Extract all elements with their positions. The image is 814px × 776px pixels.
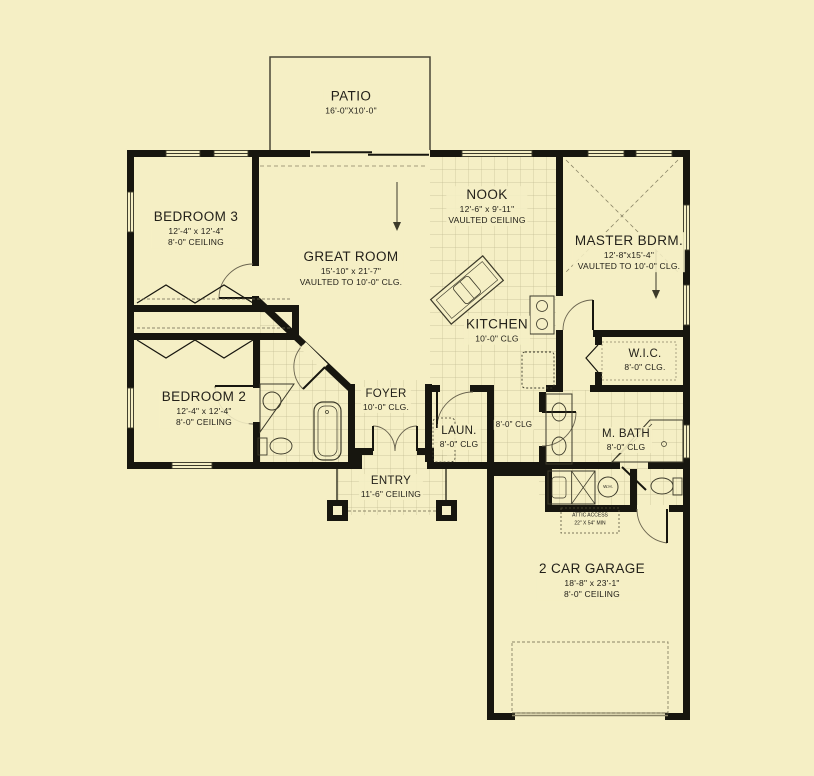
room-ceiling: VAULTED CEILING <box>448 215 525 226</box>
room-name: KITCHEN <box>466 316 528 334</box>
room-ceiling: VAULTED TO 10'-0" CLG. <box>575 261 683 272</box>
room-label-bedroom2: BEDROOM 2 12'-4" x 12'-4" 8'-0" CEILING <box>160 388 249 428</box>
garage-door <box>512 642 668 716</box>
attic-access-line2: 22" X 54" MIN <box>572 520 608 528</box>
room-name: PATIO <box>325 88 377 106</box>
room-name: 2 CAR GARAGE <box>539 560 645 578</box>
hall-ceiling-note: 8'-0" CLG <box>494 420 534 430</box>
room-ceiling: 8'-0" CLG <box>440 439 479 450</box>
room-dims: 12'-6" x 9'-11" <box>448 204 525 215</box>
room-label-laundry: LAUN. 8'-0" CLG <box>438 424 481 450</box>
room-name: NOOK <box>448 186 525 204</box>
room-dims: 18'-8" x 23'-1" <box>539 578 645 589</box>
room-ceiling: 11'-6" CEILING <box>361 489 421 500</box>
room-label-great-room: GREAT ROOM 15'-10" x 21'-7" VAULTED TO 1… <box>298 248 404 288</box>
attic-access-note: ATTIC ACCESS 22" X 54" MIN <box>570 513 610 528</box>
room-ceiling: 8'-0" CEILING <box>162 417 247 428</box>
room-ceiling: 8'-0" CLG <box>496 420 532 430</box>
room-name: W.I.C. <box>624 347 665 362</box>
room-dims: 12'-4" x 12'-4" <box>162 406 247 417</box>
room-dims: 12'-4" x 12'-4" <box>154 226 239 237</box>
water-heater-label: W.H. <box>603 484 613 490</box>
room-label-kitchen: KITCHEN 10'-0" CLG <box>464 316 530 345</box>
room-ceiling: 8'-0" CLG <box>602 442 650 453</box>
room-label-garage: 2 CAR GARAGE 18'-8" x 23'-1" 8'-0" CEILI… <box>537 560 647 600</box>
sliding-door <box>310 150 430 157</box>
room-label-entry: ENTRY 11'-6" CEILING <box>359 474 423 500</box>
room-ceiling: 8'-0" CEILING <box>539 589 645 600</box>
room-name: M. BATH <box>602 427 650 442</box>
room-ceiling: VAULTED TO 10'-0" CLG. <box>300 277 402 288</box>
room-label-bedroom3: BEDROOM 3 12'-4" x 12'-4" 8'-0" CEILING <box>152 208 241 248</box>
room-label-wic: W.I.C. 8'-0" CLG. <box>622 347 667 373</box>
room-ceiling: 8'-0" CEILING <box>154 237 239 248</box>
room-name: ENTRY <box>361 474 421 489</box>
room-ceiling: 10'-0" CLG. <box>363 402 409 413</box>
floor-plan: PATIO 16'-0"X10'-0" NOOK 12'-6" x 9'-11"… <box>0 0 814 776</box>
room-dims: 12'-8"x15'-4" <box>575 250 683 261</box>
room-label-patio: PATIO 16'-0"X10'-0" <box>323 88 379 117</box>
room-name: FOYER <box>363 387 409 402</box>
room-label-foyer: FOYER 10'-0" CLG. <box>361 387 411 413</box>
room-ceiling: 8'-0" CLG. <box>624 362 665 373</box>
room-label-master-bath: M. BATH 8'-0" CLG <box>600 427 652 453</box>
room-name: BEDROOM 3 <box>154 208 239 226</box>
room-ceiling: 10'-0" CLG <box>466 333 528 344</box>
room-label-nook: NOOK 12'-6" x 9'-11" VAULTED CEILING <box>446 186 527 226</box>
room-name: MASTER BDRM. <box>575 232 683 250</box>
room-dims: 16'-0"X10'-0" <box>325 105 377 116</box>
room-name: BEDROOM 2 <box>162 388 247 406</box>
room-name: LAUN. <box>440 424 479 439</box>
room-label-master-bedroom: MASTER BDRM. 12'-8"x15'-4" VAULTED TO 10… <box>573 232 685 272</box>
room-name: GREAT ROOM <box>300 248 402 266</box>
room-dims: 15'-10" x 21'-7" <box>300 266 402 277</box>
attic-access-line1: ATTIC ACCESS <box>572 513 608 521</box>
